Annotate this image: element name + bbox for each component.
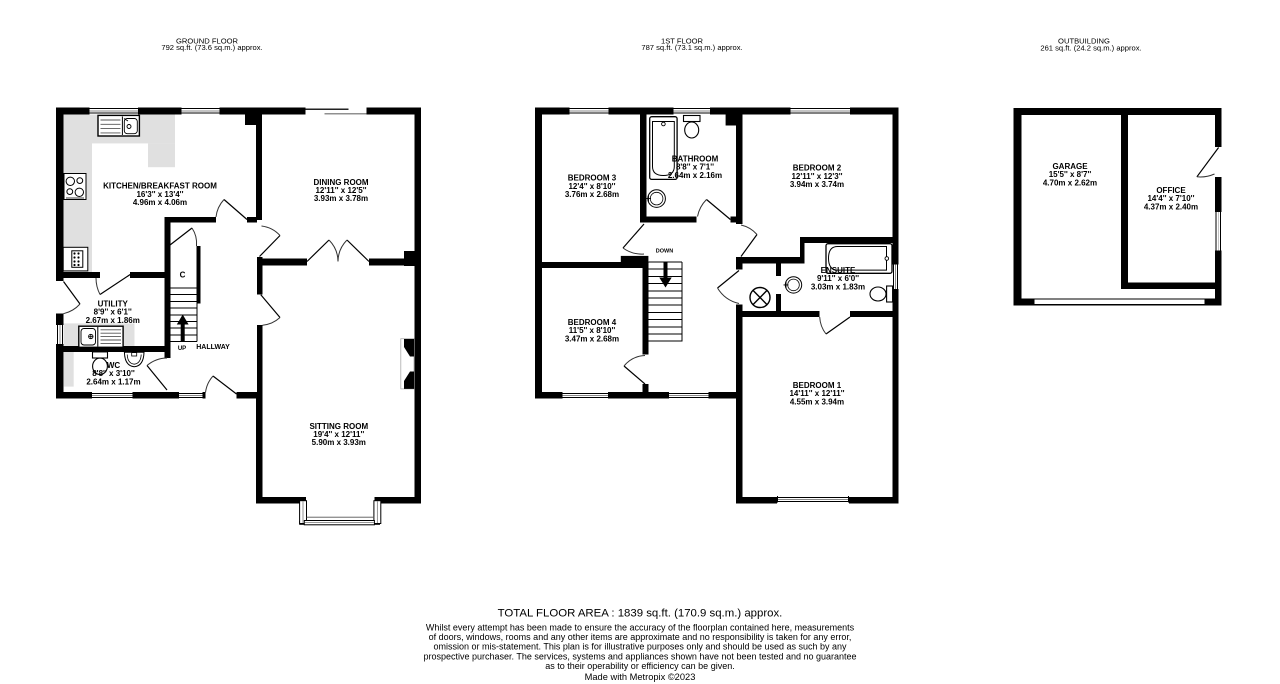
svg-text:TOTAL FLOOR AREA : 1839 sq.ft.: TOTAL FLOOR AREA : 1839 sq.ft. (170.9 sq… [498,607,783,619]
svg-text:2.67m x 1.86m: 2.67m x 1.86m [86,316,140,325]
svg-text:of doors, windows, rooms and a: of doors, windows, rooms and any other i… [429,632,852,642]
svg-text:HALLWAY: HALLWAY [196,344,230,351]
svg-text:3.93m x 3.78m: 3.93m x 3.78m [314,194,368,203]
svg-text:261 sq.ft. (24.2 sq.m.) approx: 261 sq.ft. (24.2 sq.m.) approx. [1040,43,1141,52]
svg-text:787 sq.ft. (73.1 sq.m.) approx: 787 sq.ft. (73.1 sq.m.) approx. [641,43,742,52]
svg-text:Whilst every attempt has been: Whilst every attempt has been made to en… [426,623,855,633]
svg-text:as to their operability or eff: as to their operability or efficiency ca… [545,661,734,671]
svg-text:3.76m x 2.68m: 3.76m x 2.68m [565,190,619,199]
svg-text:UP: UP [178,346,186,352]
svg-text:C: C [180,271,186,280]
svg-text:prospective purchaser. The ser: prospective purchaser. The services, sys… [423,651,856,661]
svg-text:4.96m x 4.06m: 4.96m x 4.06m [133,198,187,207]
svg-text:3.47m x 2.68m: 3.47m x 2.68m [565,334,619,343]
svg-text:4.55m x 3.94m: 4.55m x 3.94m [790,397,844,406]
svg-text:792 sq.ft. (73.6 sq.m.) approx: 792 sq.ft. (73.6 sq.m.) approx. [161,43,262,52]
svg-text:2.64m x 2.16m: 2.64m x 2.16m [668,171,722,180]
svg-text:3.03m x 1.83m: 3.03m x 1.83m [811,282,865,291]
svg-text:DOWN: DOWN [656,249,673,255]
svg-text:4.70m x 2.62m: 4.70m x 2.62m [1043,178,1097,187]
svg-text:5.90m x 3.93m: 5.90m x 3.93m [312,438,366,447]
svg-text:4.37m x 2.40m: 4.37m x 2.40m [1144,202,1198,211]
svg-text:3.94m x 3.74m: 3.94m x 3.74m [790,180,844,189]
svg-text:2.64m x 1.17m: 2.64m x 1.17m [86,377,140,386]
svg-text:Made with Metropix ©2023: Made with Metropix ©2023 [585,672,696,682]
svg-text:omission or mis-statement. Thi: omission or mis-statement. This plan is … [433,642,847,652]
